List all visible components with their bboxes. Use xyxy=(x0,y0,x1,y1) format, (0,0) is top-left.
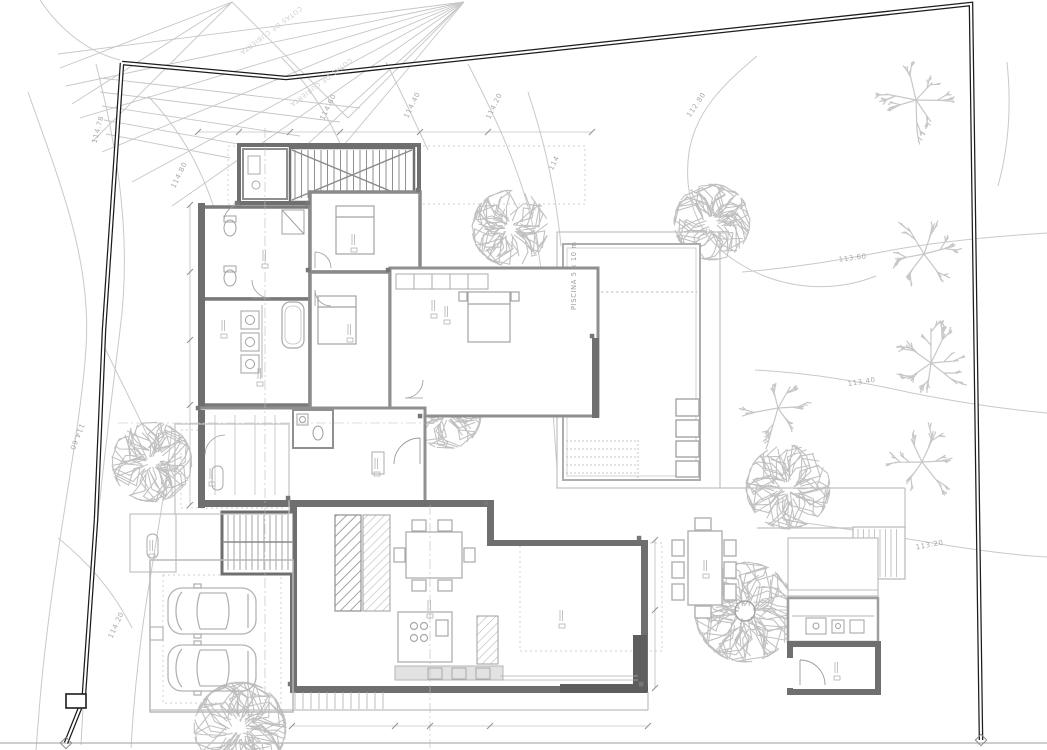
floor-plan-canvas: 114.78114.80114.60114.40114.20114112.801… xyxy=(0,0,1047,750)
micro-label xyxy=(559,610,565,628)
outbuilding xyxy=(786,538,878,692)
leafy-tree-icon xyxy=(746,445,830,529)
car-icon xyxy=(168,584,256,638)
roof-note-label: COTAS DE CUBIERTA xyxy=(238,4,303,56)
contour-label: 114.60 xyxy=(68,422,86,451)
contour-label: 113.60 xyxy=(838,252,867,263)
contour-label: 112.80 xyxy=(685,91,707,119)
roof-note-label: COTAS DE CUBIERTA xyxy=(288,56,353,108)
leafy-tree-icon xyxy=(112,422,192,502)
site-plan-sheet: 114.78114.80114.60114.40114.20114112.801… xyxy=(0,0,1047,750)
contour-label: 114.80 xyxy=(169,161,189,190)
dining-table xyxy=(394,520,475,591)
living-wing xyxy=(290,500,648,693)
leafy-tree-icon xyxy=(472,190,548,265)
contour-label: 113.40 xyxy=(847,376,876,388)
garden-steps xyxy=(295,692,383,709)
leafy-tree-icon xyxy=(194,682,286,750)
bare-tree-icon xyxy=(886,422,953,495)
contour-label: 114 xyxy=(547,155,561,172)
bare-tree-icon xyxy=(893,221,962,287)
pool-label: PISCINA 5 x 10 m xyxy=(570,241,578,310)
bare-tree-icon xyxy=(875,61,955,145)
contour-label: 114.78 xyxy=(91,115,106,144)
bare-tree-icon xyxy=(739,383,812,450)
contour-label: 114.20 xyxy=(107,611,126,640)
exterior-stair xyxy=(222,512,294,574)
bare-tree-icon xyxy=(896,321,967,393)
kitchen-island xyxy=(398,612,452,662)
